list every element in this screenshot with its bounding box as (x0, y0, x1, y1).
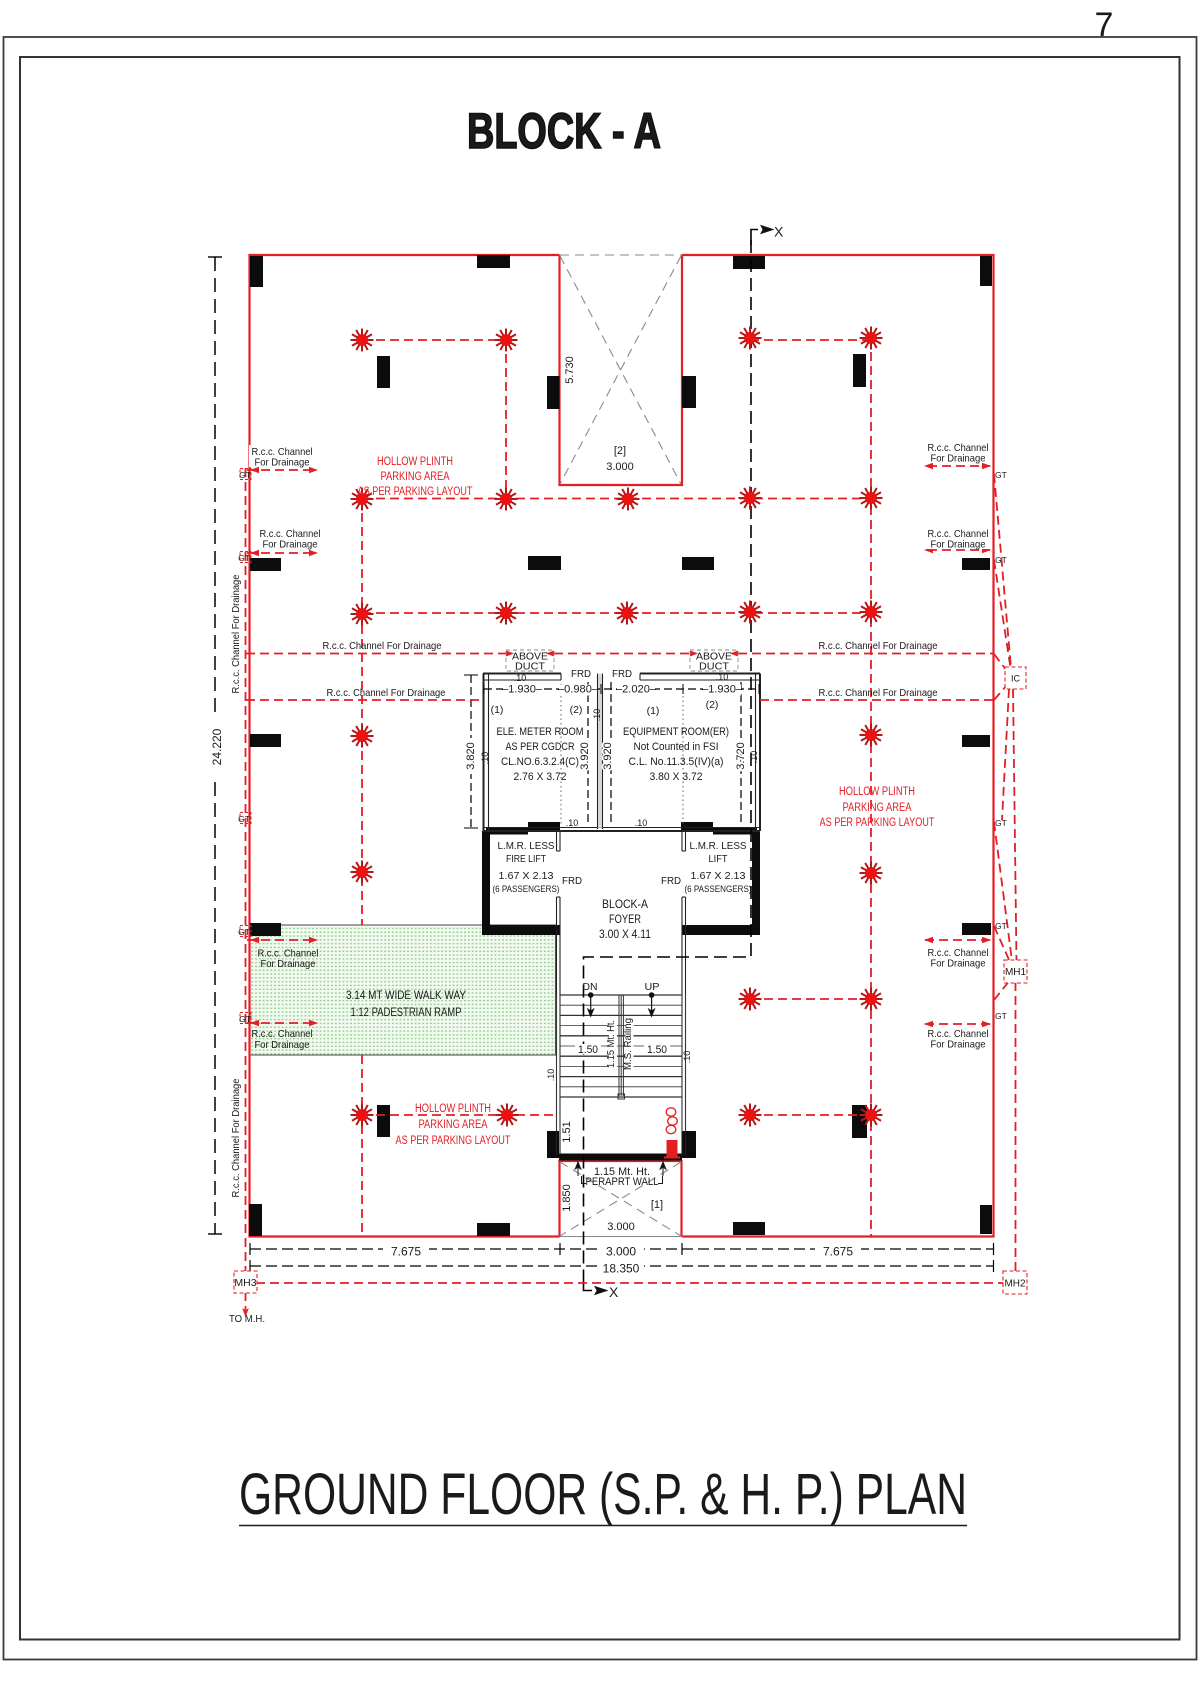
svg-text:GT: GT (995, 1011, 1007, 1021)
svg-text:GROUND FLOOR (S.P. & H. P.) PL: GROUND FLOOR (S.P. & H. P.) PLAN (239, 1462, 967, 1527)
svg-text:GT: GT (238, 814, 250, 824)
svg-text:For Drainage: For Drainage (255, 457, 310, 469)
svg-text:.10: .10 (514, 673, 527, 683)
svg-text:3.80 X 3.72: 3.80 X 3.72 (650, 771, 703, 783)
svg-text:3.00 X 4.11: 3.00 X 4.11 (599, 929, 651, 941)
svg-text:–2.020–: –2.020– (616, 684, 657, 696)
svg-text:For Drainage: For Drainage (261, 958, 316, 970)
svg-text:GT: GT (238, 927, 250, 937)
svg-text:3.920: 3.920 (602, 742, 614, 770)
svg-text:PERAPRT WALL: PERAPRT WALL (586, 1176, 659, 1188)
svg-text:GT: GT (995, 555, 1007, 565)
svg-text:ELE. METER ROOM: ELE. METER ROOM (497, 726, 584, 738)
svg-text:X: X (774, 224, 784, 240)
svg-text:PARKING AREA: PARKING AREA (419, 1119, 488, 1131)
svg-text:3.000: 3.000 (606, 461, 634, 473)
svg-text:7: 7 (1095, 6, 1114, 44)
svg-text:AS PER PARKING LAYOUT: AS PER PARKING LAYOUT (358, 486, 473, 498)
svg-text:3.920: 3.920 (579, 742, 591, 770)
svg-text:3.000: 3.000 (607, 1221, 635, 1233)
svg-text:TO M.H.: TO M.H. (229, 1314, 265, 1325)
svg-text:1.51: 1.51 (561, 1121, 573, 1142)
svg-text:18.350: 18.350 (603, 1262, 640, 1276)
svg-text:3.720: 3.720 (735, 742, 747, 770)
svg-text:.10: .10 (716, 672, 729, 682)
svg-text:UP: UP (645, 981, 660, 993)
svg-text:FRD: FRD (571, 668, 591, 680)
svg-text:GT: GT (238, 553, 250, 563)
svg-text:–0.980–: –0.980– (558, 684, 599, 696)
svg-text:M.S. Railing: M.S. Railing (623, 1018, 634, 1070)
svg-text:3.14 MT WIDE WALK WAY: 3.14 MT WIDE WALK WAY (346, 988, 466, 1002)
svg-text:(2): (2) (706, 699, 719, 711)
svg-text:.10: .10 (749, 751, 759, 764)
svg-text:R.c.c. Channel For Drainage: R.c.c. Channel For Drainage (230, 1078, 242, 1197)
svg-text:HOLLOW PLINTH: HOLLOW PLINTH (415, 1103, 491, 1115)
svg-text:For Drainage: For Drainage (931, 539, 986, 551)
svg-text:For Drainage: For Drainage (931, 958, 986, 970)
svg-text:1.67 X 2.13: 1.67 X 2.13 (499, 870, 554, 882)
svg-text:5.730: 5.730 (564, 356, 576, 384)
svg-text:EQUIPMENT ROOM(ER): EQUIPMENT ROOM(ER) (623, 726, 729, 738)
svg-text:PARKING AREA: PARKING AREA (843, 802, 912, 814)
svg-text:7.675: 7.675 (823, 1245, 853, 1259)
svg-text:GT: GT (995, 818, 1007, 828)
svg-text:.10: .10 (592, 709, 602, 722)
svg-text:.10: .10 (635, 818, 648, 828)
svg-text:HOLLOW PLINTH: HOLLOW PLINTH (839, 786, 915, 798)
svg-text:–1.930–: –1.930– (502, 684, 543, 696)
svg-text:GT: GT (239, 1014, 251, 1024)
svg-text:7.675: 7.675 (391, 1245, 421, 1259)
svg-text:DUCT: DUCT (515, 662, 545, 673)
svg-text:FRD: FRD (562, 875, 582, 887)
svg-text:HOLLOW PLINTH: HOLLOW PLINTH (377, 456, 453, 468)
svg-text:FOYER: FOYER (609, 914, 641, 926)
svg-text:GT: GT (995, 921, 1007, 931)
svg-text:MH1: MH1 (1005, 967, 1027, 978)
svg-text:PARKING AREA: PARKING AREA (381, 471, 450, 483)
svg-text:C.L. No.11.3.5(IV)(a): C.L. No.11.3.5(IV)(a) (629, 756, 724, 768)
svg-text:For Drainage: For Drainage (263, 539, 318, 551)
svg-text:1.15 Mt. Ht.: 1.15 Mt. Ht. (606, 1020, 617, 1068)
svg-text:(2): (2) (570, 704, 583, 716)
svg-text:L.M.R. LESS: L.M.R. LESS (498, 840, 555, 852)
svg-text:LIFT: LIFT (709, 853, 729, 865)
svg-text:3.000: 3.000 (606, 1245, 636, 1259)
svg-text:1:12 PADESTRIAN RAMP: 1:12 PADESTRIAN RAMP (351, 1005, 462, 1019)
svg-text:For Drainage: For Drainage (931, 453, 986, 465)
svg-text:[2]: [2] (614, 445, 626, 457)
svg-text:IC: IC (1011, 674, 1021, 684)
svg-text:24.220: 24.220 (210, 728, 224, 765)
svg-text:L.M.R. LESS: L.M.R. LESS (690, 840, 747, 852)
svg-text:DUCT: DUCT (699, 662, 729, 673)
svg-text:For Drainage: For Drainage (255, 1039, 310, 1051)
svg-text:(1): (1) (491, 704, 504, 716)
svg-text:(6 PASSENGERS): (6 PASSENGERS) (685, 884, 752, 894)
svg-text:AS PER PARKING LAYOUT: AS PER PARKING LAYOUT (820, 817, 935, 829)
svg-text:MH2: MH2 (1004, 1279, 1026, 1290)
svg-text:2.76 X 3.72: 2.76 X 3.72 (514, 771, 567, 783)
svg-text:[1]: [1] (651, 1199, 663, 1211)
svg-text:(6 PASSENGERS): (6 PASSENGERS) (493, 884, 560, 894)
svg-text:1.67 X 2.13: 1.67 X 2.13 (691, 870, 746, 882)
svg-text:GT: GT (239, 470, 251, 480)
svg-text:1.850: 1.850 (561, 1184, 573, 1212)
svg-text:.10: .10 (480, 752, 490, 765)
svg-text:BLOCK - A: BLOCK - A (467, 103, 661, 159)
svg-text:R.c.c. Channel For Drainage: R.c.c. Channel For Drainage (819, 640, 938, 652)
svg-text:.10: .10 (566, 818, 579, 828)
svg-text:R.c.c. Channel For Drainage: R.c.c. Channel For Drainage (819, 687, 938, 699)
svg-text:–1.930–: –1.930– (702, 684, 743, 696)
svg-text:Not Counted in FSI: Not Counted in FSI (634, 741, 719, 753)
svg-text:(1): (1) (647, 705, 660, 717)
svg-text:For Drainage: For Drainage (931, 1039, 986, 1051)
svg-text:AS PER PARKING LAYOUT: AS PER PARKING LAYOUT (396, 1135, 511, 1147)
svg-text:1.50: 1.50 (578, 1044, 598, 1056)
svg-text:.10: .10 (546, 1069, 556, 1082)
svg-text:CL.NO.6.3.2.4(C): CL.NO.6.3.2.4(C) (501, 756, 579, 768)
svg-text:FRD: FRD (612, 668, 632, 680)
svg-text:FRD: FRD (661, 875, 681, 887)
svg-text:R.c.c. Channel For Drainage: R.c.c. Channel For Drainage (323, 640, 442, 652)
svg-text:MH3: MH3 (234, 1277, 256, 1289)
svg-text:X: X (609, 1284, 619, 1300)
svg-text:R.c.c. Channel For Drainage: R.c.c. Channel For Drainage (230, 574, 242, 693)
svg-text:GT: GT (995, 470, 1007, 480)
svg-text:3.820: 3.820 (465, 742, 477, 770)
svg-text:R.c.c. Channel For Drainage: R.c.c. Channel For Drainage (327, 687, 446, 699)
svg-text:AS PER CGDCR: AS PER CGDCR (506, 741, 575, 753)
svg-text:FIRE LIFT: FIRE LIFT (506, 853, 546, 865)
svg-text:BLOCK-A: BLOCK-A (602, 899, 648, 911)
svg-text:.10: .10 (682, 1051, 692, 1064)
svg-text:1.50: 1.50 (647, 1044, 667, 1056)
svg-text:DN: DN (583, 981, 598, 993)
